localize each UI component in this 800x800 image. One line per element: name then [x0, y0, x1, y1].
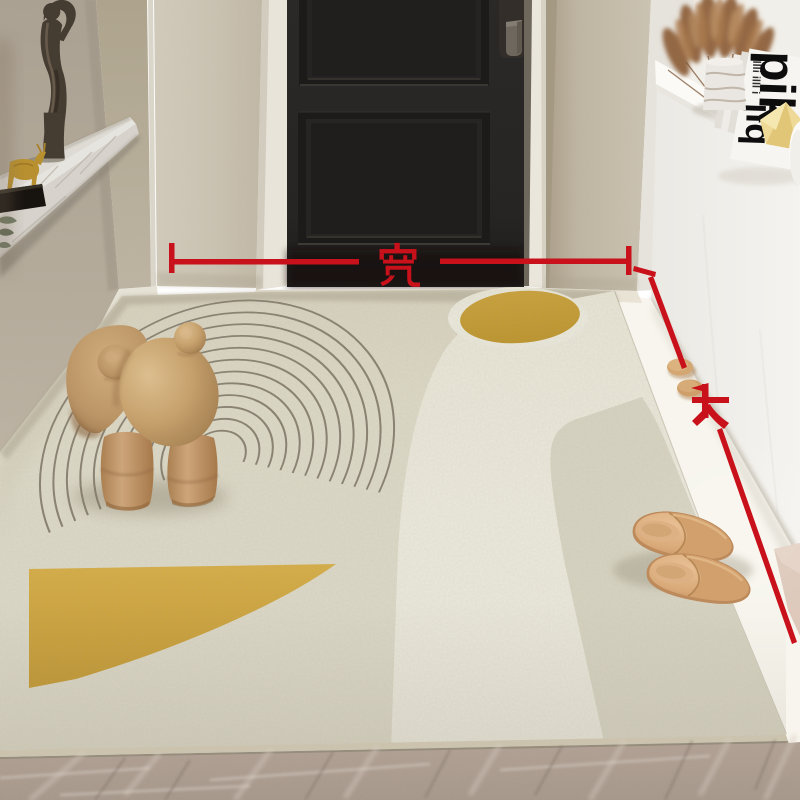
svg-text:illlli illl i: illlli illl i — [749, 54, 762, 94]
